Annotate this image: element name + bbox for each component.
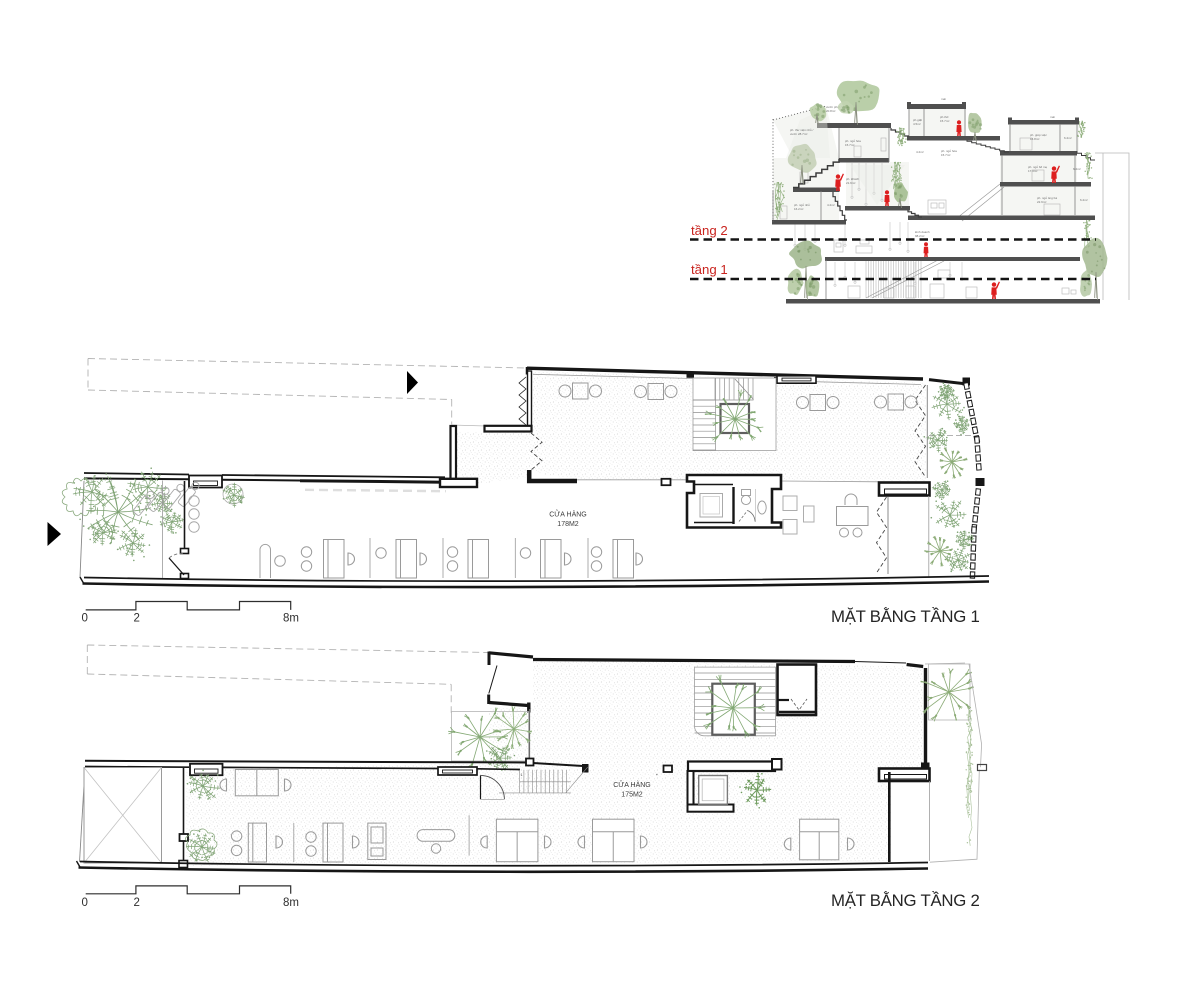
svg-text:MẶT BẰNG TẦNG 2: MẶT BẰNG TẦNG 2 — [831, 891, 980, 910]
svg-text:mái: mái — [1050, 115, 1055, 119]
svg-text:4.5m²: 4.5m² — [913, 122, 921, 126]
svg-text:tầng 1: tầng 1 — [691, 262, 728, 277]
svg-text:15.7m²: 15.7m² — [845, 143, 854, 147]
svg-text:21.6m²: 21.6m² — [846, 181, 855, 185]
svg-text:2: 2 — [134, 897, 140, 909]
svg-text:15.7m²: 15.7m² — [940, 119, 949, 123]
svg-text:20.8m²: 20.8m² — [826, 109, 835, 113]
svg-text:8m: 8m — [283, 613, 299, 625]
svg-text:CỬA HÀNG: CỬA HÀNG — [549, 510, 587, 519]
svg-text:16.2m²: 16.2m² — [794, 207, 803, 211]
svg-text:vườn 28.7m²: vườn 28.7m² — [790, 132, 807, 136]
svg-text:6.2m²: 6.2m² — [1064, 136, 1072, 140]
svg-text:175M2: 175M2 — [621, 792, 643, 799]
svg-text:4.2m²: 4.2m² — [916, 150, 924, 154]
svg-text:mái: mái — [941, 97, 946, 101]
svg-text:MẶT BẰNG TẦNG 1: MẶT BẰNG TẦNG 1 — [831, 607, 980, 626]
svg-text:6.2m²: 6.2m² — [1080, 198, 1088, 202]
svg-text:tầng 2: tầng 2 — [691, 223, 728, 238]
svg-text:17.3m²: 17.3m² — [1028, 169, 1037, 173]
svg-text:8m: 8m — [283, 897, 299, 909]
svg-text:CỬA HÀNG: CỬA HÀNG — [613, 780, 651, 789]
svg-text:22.9m²: 22.9m² — [1037, 200, 1046, 204]
svg-text:178M2: 178M2 — [557, 521, 579, 528]
svg-text:16.8m²: 16.8m² — [1030, 137, 1039, 141]
svg-text:4.2m²: 4.2m² — [827, 203, 835, 207]
svg-text:0: 0 — [82, 897, 88, 909]
svg-text:15.7m²: 15.7m² — [941, 153, 950, 157]
svg-text:1: 1 — [521, 773, 523, 777]
svg-text:6.2m²: 6.2m² — [1073, 167, 1081, 171]
svg-text:98.2m²: 98.2m² — [915, 234, 924, 238]
svg-text:0: 0 — [82, 613, 88, 625]
svg-text:2: 2 — [134, 613, 140, 625]
